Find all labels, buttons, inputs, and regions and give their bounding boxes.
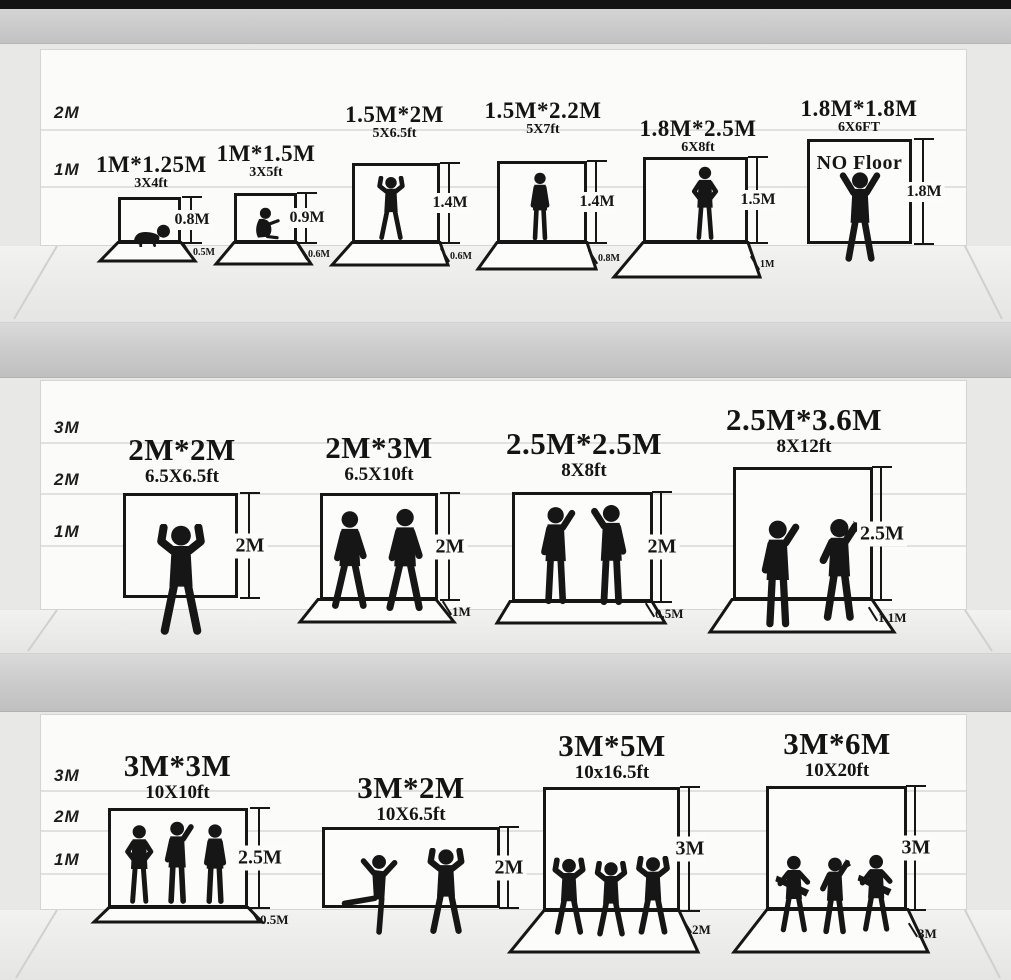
panel-title: 3M*2M 10X6.5ft (325, 772, 497, 824)
figure-child-arms-raised (374, 176, 408, 243)
figure-three-person-band (772, 840, 898, 950)
figure-two-men-posing (752, 508, 864, 634)
floor-dimension: 3M (918, 926, 937, 942)
floor-dimension: 0.5M (260, 912, 289, 928)
floor-label: 1.1M (878, 610, 907, 625)
shelf-divider (0, 322, 1011, 378)
panel-size-meters: 1M*1.5M (208, 142, 324, 166)
height-label: 2.5M (235, 846, 285, 871)
figure-toddler-sitting (247, 207, 287, 244)
height-label: 2.5M (857, 521, 907, 546)
height-label: 3M (899, 836, 934, 861)
floor-dimension: 0.5M (193, 247, 215, 258)
height-dimension: 1.4M (448, 163, 450, 243)
panel-title: 1M*1.25M 3X4ft (96, 153, 206, 192)
height-label: 3M (673, 837, 708, 862)
axis-label-2m: 2M (54, 103, 80, 123)
axis-label-1m: 1M (54, 160, 80, 180)
height-label: 2M (645, 535, 680, 560)
axis-label-1m: 1M (54, 850, 80, 870)
panel-size-feet: 5X7ft (478, 123, 608, 138)
floor-dimension: 1.1M (878, 610, 907, 626)
shelf-row-2: 3M 2M 1M 2M*2M 6.5X6.5ft 2M 2M*3M 6.5X10… (0, 376, 1011, 653)
floor-label: 0.5M (655, 606, 684, 621)
panel-title: 1M*1.5M 3X5ft (208, 142, 324, 181)
panel-title: 1.8M*1.8M 6X6FT (788, 97, 930, 136)
height-label: 1.8M (903, 182, 944, 202)
axis-label-3m: 3M (54, 766, 80, 786)
panel-size-meters: 2M*2M (108, 434, 256, 467)
floor-dimension: 1M (452, 604, 471, 620)
height-label: 0.9M (286, 208, 327, 228)
panel-size-feet: 5X6.5ft (332, 127, 457, 142)
floor-dimension: 0.6M (308, 249, 330, 260)
panel-size-feet: 8X12ft (718, 437, 890, 457)
backdrop-floor-sweep (92, 906, 264, 924)
height-dimension: 2M (660, 492, 662, 602)
panel-size-feet: 6X8ft (628, 141, 768, 156)
floor-dimension: 0.5M (655, 606, 684, 622)
axis-label-2m: 2M (54, 470, 80, 490)
panel-title: 2.5M*3.6M 8X12ft (718, 404, 890, 456)
floor-label: 0.6M (450, 251, 472, 262)
height-dimension: 2M (448, 493, 450, 600)
panel-title: 2M*3M 6.5X10ft (298, 432, 460, 484)
panel-title: 3M*3M 10X10ft (95, 750, 260, 802)
height-label: 1.4M (576, 192, 617, 212)
panel-title: 1.5M*2M 5X6.5ft (332, 103, 457, 142)
panel-size-feet: 10X10ft (95, 783, 260, 803)
height-label: 1.5M (737, 190, 778, 210)
figure-man-hands-on-hips (686, 166, 724, 243)
figure-baby-crawling (124, 221, 176, 247)
floor-label: 3M (918, 926, 937, 941)
axis-label-3m: 3M (54, 418, 80, 438)
figure-two-people-dancing (336, 848, 484, 938)
floor-label: 0.6M (308, 249, 330, 260)
panel-title: 1.5M*2.2M 5X7ft (478, 99, 608, 138)
panel-size-meters: 1.8M*1.8M (788, 97, 930, 121)
panel-title: 3M*6M 10X20ft (752, 728, 922, 780)
backdrop-floor-sweep (612, 241, 762, 279)
panel-title: 2.5M*2.5M 8X8ft (498, 428, 670, 480)
panel-size-meters: 3M*2M (325, 772, 497, 805)
height-label: 0.8M (171, 210, 212, 230)
height-dimension: 1.5M (756, 157, 758, 243)
panel-size-meters: 2M*3M (298, 432, 460, 465)
floor-label: 0.5M (193, 247, 215, 258)
height-dimension: 2.5M (880, 467, 882, 600)
height-dimension: 0.8M (190, 197, 192, 243)
shelf-row-1: 2M 1M 1M*1.25M 3X4ft 0.8M 0.5M 1M*1.5M 3… (0, 43, 1011, 322)
height-dimension: 3M (688, 787, 690, 911)
panel-size-feet: 6.5X6.5ft (108, 467, 256, 487)
height-dimension: 1.8M (922, 139, 924, 244)
panel-size-feet: 6X6FT (788, 121, 930, 136)
figure-boy-standing (524, 172, 556, 243)
panel-title: 2M*2M 6.5X6.5ft (108, 434, 256, 486)
panel-size-feet: 3X5ft (208, 166, 324, 181)
floor-dimension: 2M (692, 922, 711, 938)
floor-label: 0.5M (260, 912, 289, 927)
floor-label: 2M (692, 922, 711, 937)
figure-two-men-walking (326, 504, 430, 620)
height-label: 1.4M (429, 193, 470, 213)
height-label: 2M (233, 533, 268, 558)
panel-size-meters: 3M*6M (752, 728, 922, 761)
panel-size-feet: 6.5X10ft (298, 465, 460, 485)
panel-size-meters: 2.5M*3.6M (718, 404, 890, 437)
panel-size-feet: 8X8ft (498, 461, 670, 481)
backdrop-size-chart: { "palette": { "ink": "#161616", "wall":… (0, 0, 1011, 980)
height-label: 2M (433, 534, 468, 559)
floor-dimension: 1M (760, 259, 774, 270)
height-dimension: 3M (914, 786, 916, 910)
floor-label: 1M (760, 259, 774, 270)
panel-size-meters: 1.8M*2.5M (628, 117, 768, 141)
floor-dimension: 0.6M (450, 251, 472, 262)
height-dimension: 2.5M (258, 808, 260, 908)
panel-size-meters: 1M*1.25M (96, 153, 206, 177)
figure-man-arms-up-v (837, 171, 883, 265)
height-dimension: 1.4M (595, 161, 597, 243)
height-label: 2M (492, 855, 527, 880)
panel-size-feet: 10X6.5ft (325, 805, 497, 825)
panel-size-meters: 1.5M*2M (332, 103, 457, 127)
panel-size-meters: 3M*5M (528, 730, 696, 763)
height-dimension: 2M (248, 493, 250, 598)
shelf-divider (0, 653, 1011, 712)
floor-label: 1M (452, 604, 471, 619)
height-dimension: 2M (507, 827, 509, 908)
top-black-bar (0, 0, 1011, 9)
axis-label-1m: 1M (54, 522, 80, 542)
panel-size-feet: 3X4ft (96, 177, 206, 192)
panel-title: 1.8M*2.5M 6X8ft (628, 117, 768, 156)
panel-title: 3M*5M 10x16.5ft (528, 730, 696, 782)
panel-size-feet: 10x16.5ft (528, 763, 696, 783)
panel-size-meters: 1.5M*2.2M (478, 99, 608, 123)
backdrop-floor-sweep (330, 241, 450, 267)
figure-man-victory-arms (152, 523, 210, 641)
top-gray-band (0, 9, 1011, 44)
axis-label-2m: 2M (54, 807, 80, 827)
shelf-row-3: 3M 2M 1M 3M*3M 10X10ft 2.5M 0.5M 3M*2M 1… (0, 710, 1011, 980)
figure-two-men-talking (525, 504, 643, 609)
figure-three-people-standing (122, 820, 234, 908)
panel-size-feet: 10X20ft (752, 761, 922, 781)
backdrop-floor-sweep (476, 241, 598, 271)
height-dimension: 0.9M (305, 193, 307, 243)
panel-size-meters: 3M*3M (95, 750, 260, 783)
panel-size-meters: 2.5M*2.5M (498, 428, 670, 461)
figure-three-people-cheering (548, 842, 674, 954)
